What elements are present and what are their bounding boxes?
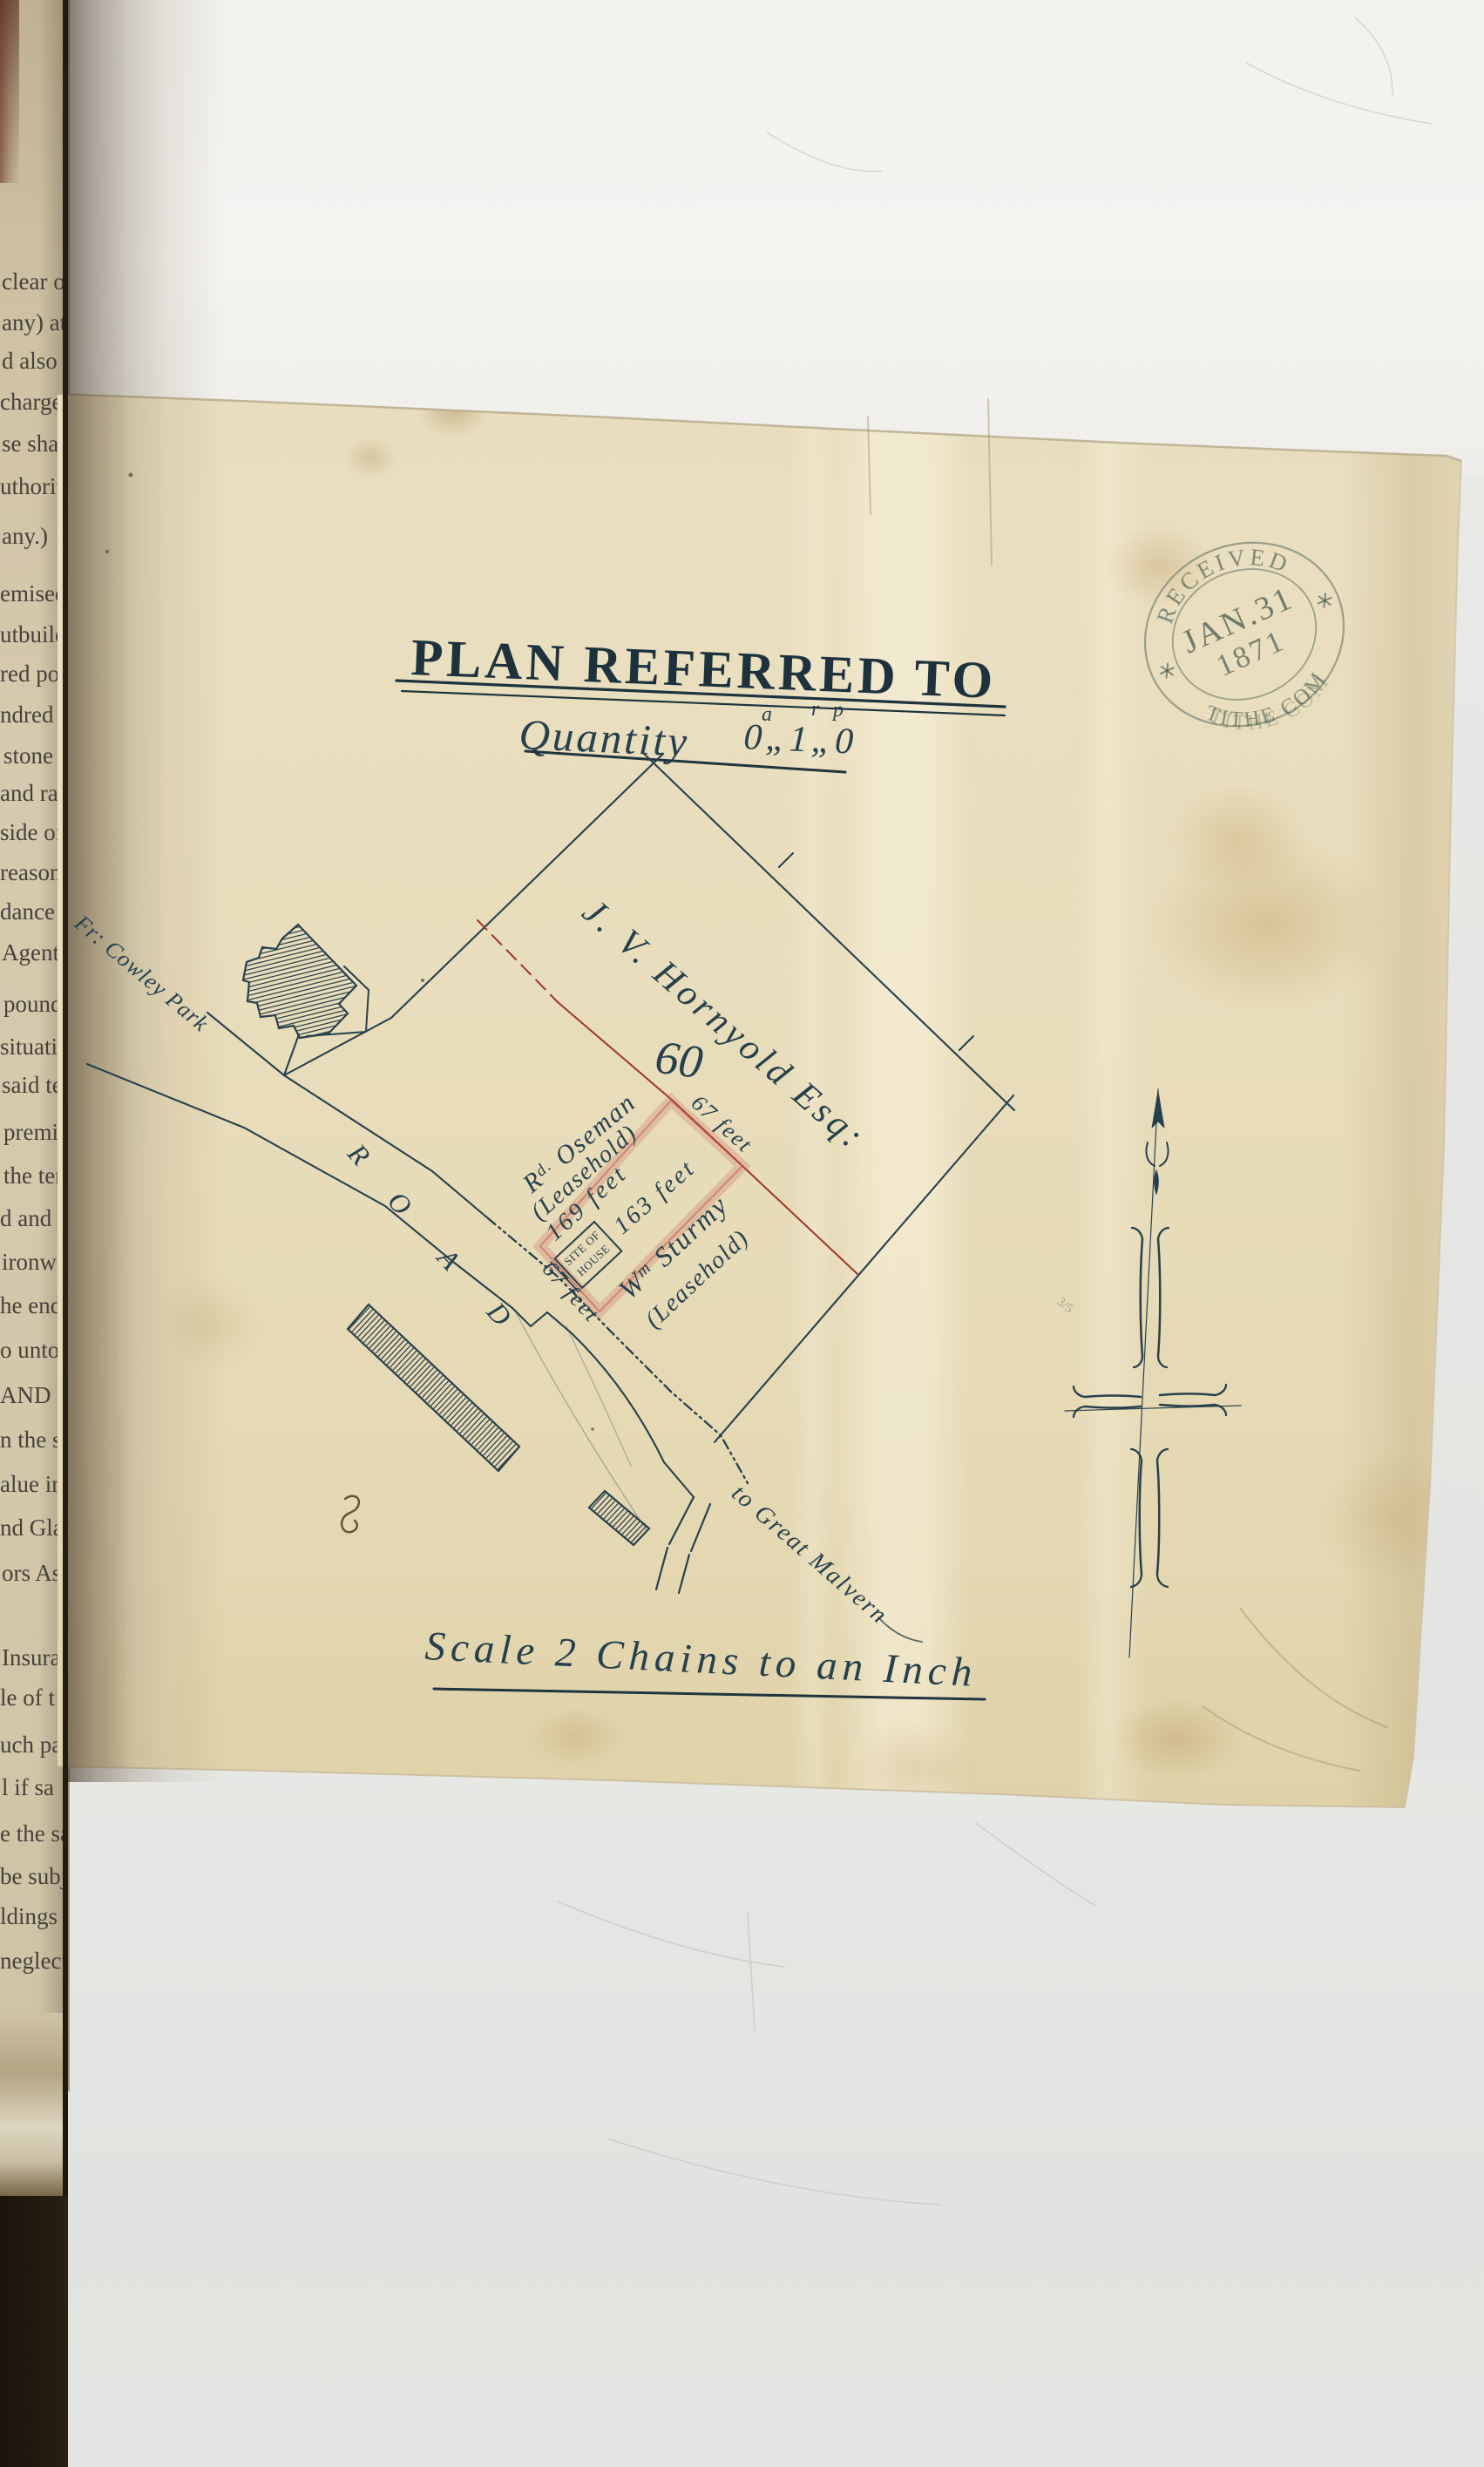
svg-text:a: a <box>762 703 772 726</box>
svg-text:to Great Malvern: to Great Malvern <box>726 1480 893 1630</box>
svg-text:O: O <box>382 1185 418 1221</box>
svg-text:Fr: Cowley Park: Fr: Cowley Park <box>69 910 213 1037</box>
svg-text:Scale 2 Chains to an Inch: Scale 2 Chains to an Inch <box>424 1623 978 1696</box>
svg-text:D: D <box>480 1295 518 1332</box>
svg-text:0„1„0: 0„1„0 <box>743 717 858 762</box>
svg-text:3/5: 3/5 <box>1054 1295 1075 1317</box>
svg-text:PLAN REFERRED TO: PLAN REFERRED TO <box>410 628 997 709</box>
svg-text:p: p <box>831 699 844 722</box>
svg-text:r: r <box>811 698 820 721</box>
svg-text:A: A <box>430 1241 466 1276</box>
svg-text:60: 60 <box>652 1030 706 1088</box>
svg-text:R: R <box>342 1137 377 1172</box>
